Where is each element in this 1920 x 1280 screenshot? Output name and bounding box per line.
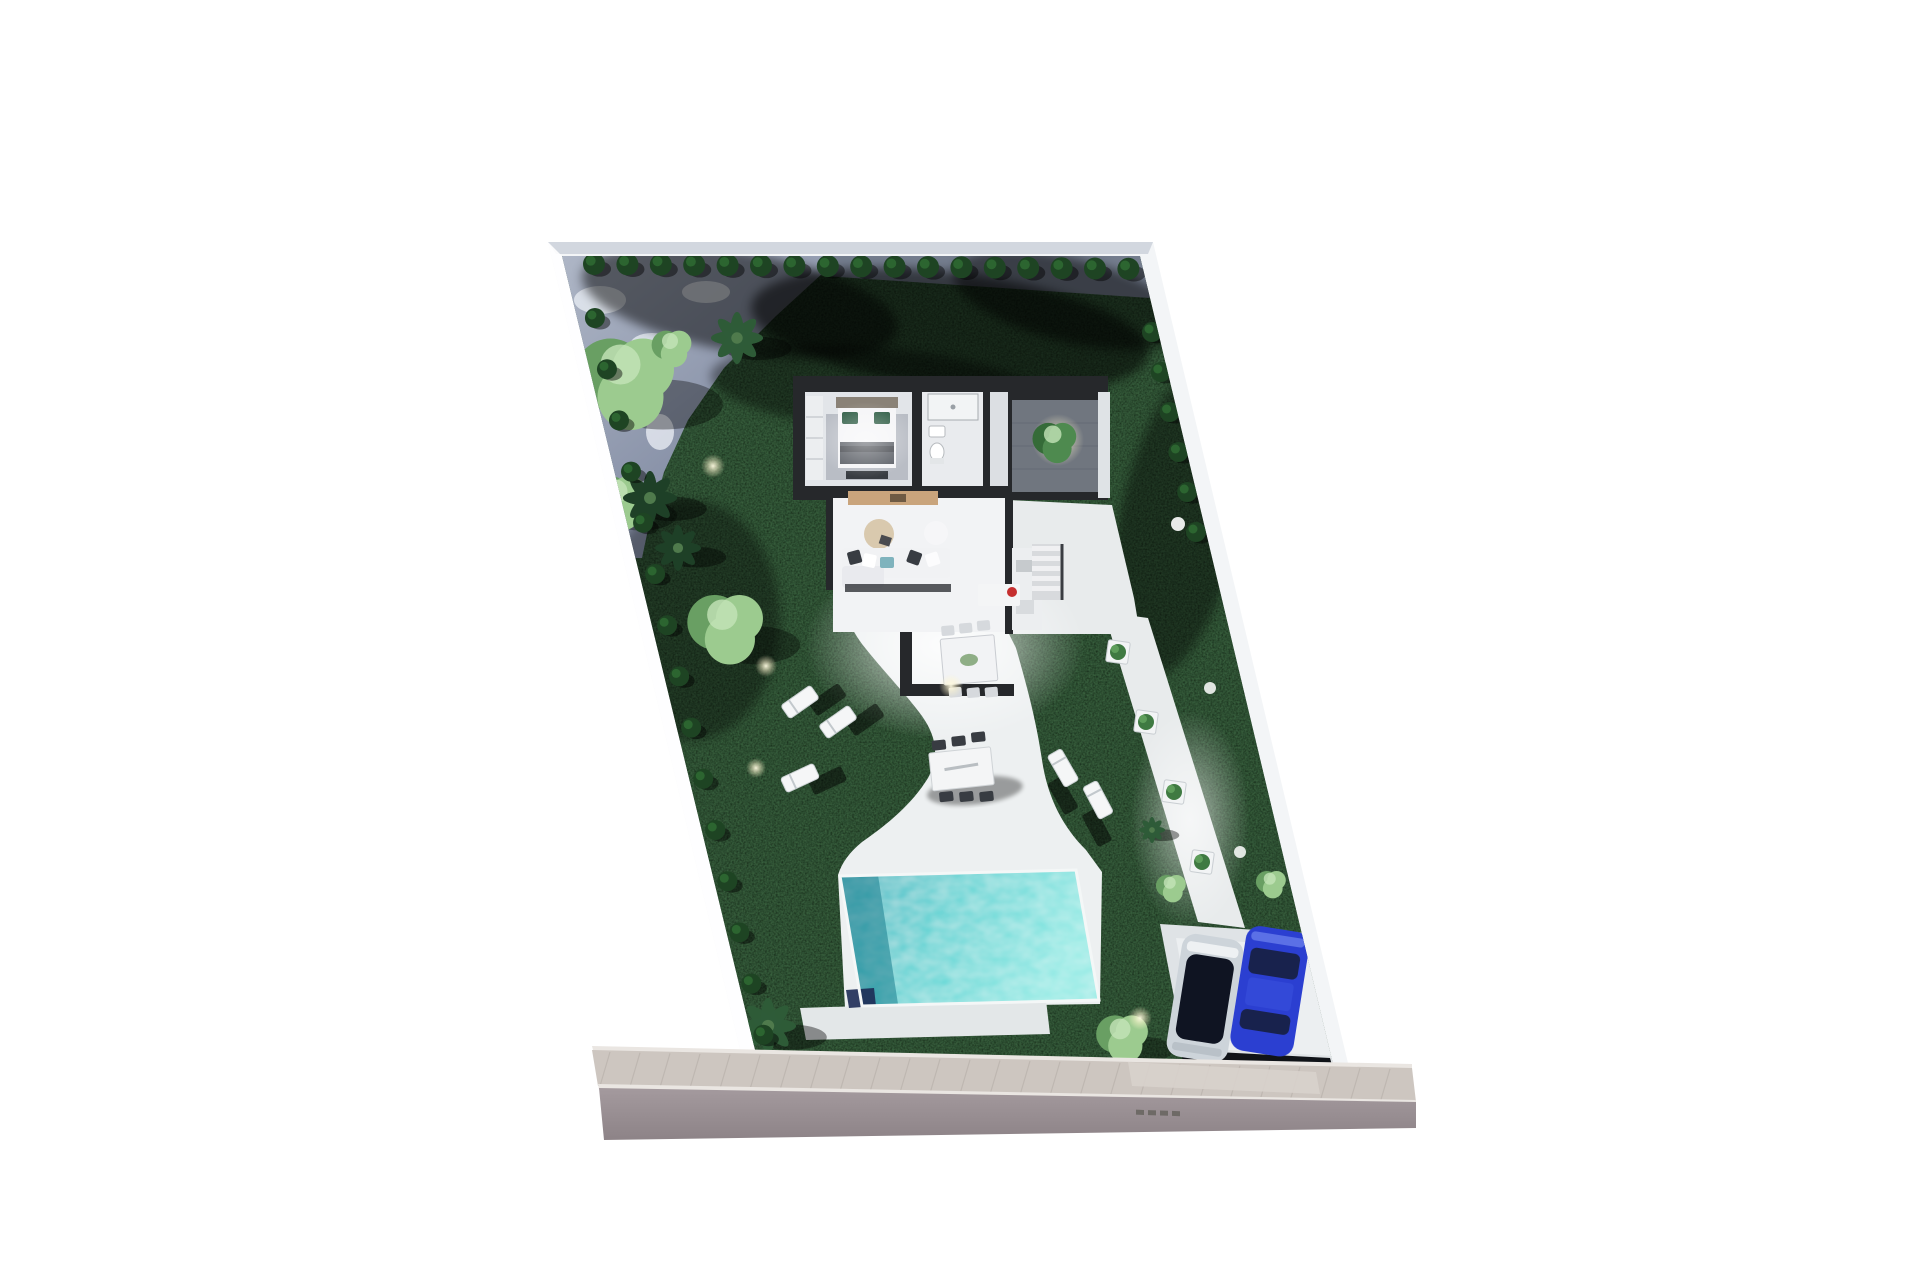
sideboard-item <box>890 494 906 502</box>
sofa-shadow <box>845 584 951 592</box>
island-red-bowl <box>1007 587 1017 597</box>
flower-bush <box>577 541 603 563</box>
carport <box>1165 924 1312 1064</box>
bedroom-bloom <box>816 402 916 478</box>
pouf <box>924 521 948 545</box>
sofa-pillow-teal <box>880 557 894 568</box>
corridor-floor <box>988 392 1008 486</box>
living-room <box>833 491 1005 632</box>
planter <box>1134 710 1159 735</box>
kitchen-sink <box>1016 560 1034 572</box>
flower-bush <box>547 429 573 451</box>
bathroom <box>922 392 983 486</box>
entrance-stairs <box>1032 544 1062 600</box>
plot-wall-top-shade <box>548 242 1153 254</box>
site-plan <box>0 0 1920 1280</box>
path-bloom <box>1130 710 1250 930</box>
planter <box>1106 640 1131 665</box>
planter <box>1190 850 1215 875</box>
render-canvas <box>0 0 1920 1280</box>
plot <box>0 225 1352 1085</box>
toilet-tank <box>930 458 944 464</box>
sofa-pillow-white-1 <box>862 553 877 568</box>
hedge-row-top <box>583 253 1145 281</box>
shower-drain <box>951 405 956 410</box>
courtyard-east-wall <box>1098 392 1110 498</box>
bedroom <box>805 392 916 486</box>
planter <box>1162 780 1187 805</box>
bathroom-sink <box>929 426 945 437</box>
